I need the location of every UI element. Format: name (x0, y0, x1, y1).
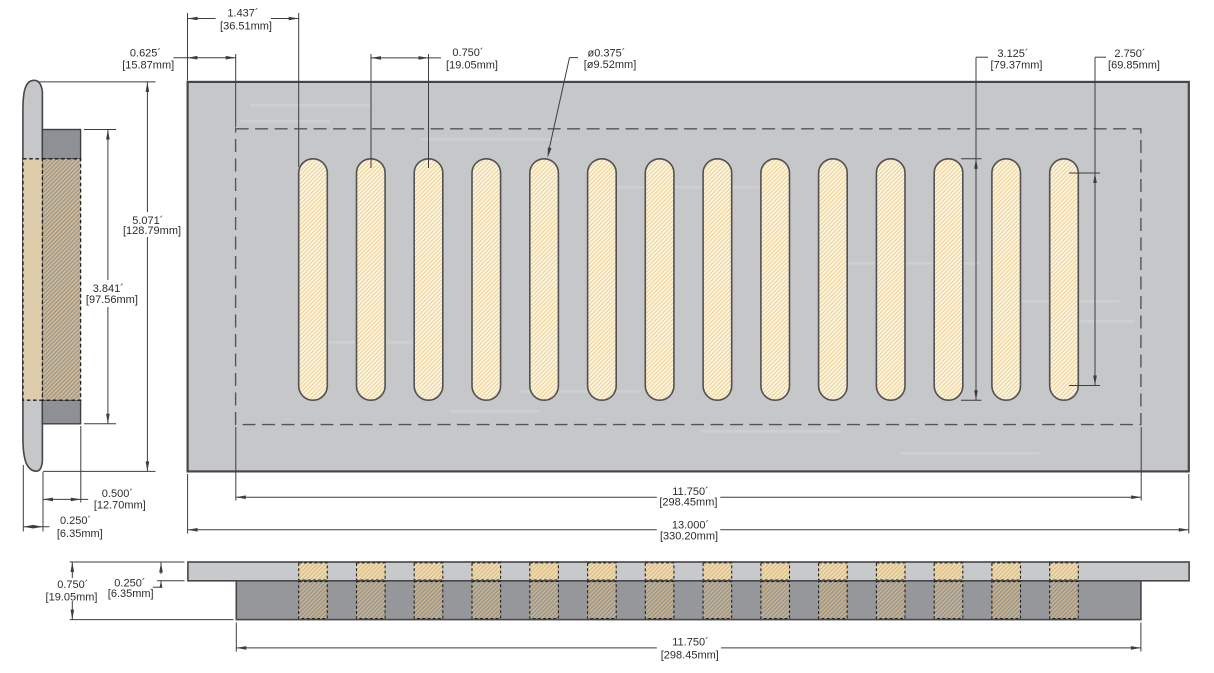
svg-text:1.437´: 1.437´ (227, 8, 258, 20)
svg-text:[298.45mm]: [298.45mm] (661, 649, 719, 661)
svg-text:0.750´: 0.750´ (452, 47, 483, 59)
svg-text:[6.35mm]: [6.35mm] (108, 588, 154, 600)
svg-text:[97.56mm]: [97.56mm] (86, 294, 138, 306)
svg-text:[19.05mm]: [19.05mm] (446, 60, 498, 72)
svg-text:[69.85mm]: [69.85mm] (1108, 59, 1160, 71)
svg-text:ø0.375´: ø0.375´ (588, 47, 626, 59)
svg-text:[128.79mm]: [128.79mm] (123, 225, 181, 237)
svg-text:[298.45mm]: [298.45mm] (659, 497, 717, 509)
svg-text:[12.70mm]: [12.70mm] (94, 500, 146, 512)
svg-text:[19.05mm]: [19.05mm] (46, 591, 98, 603)
svg-text:0.250´: 0.250´ (60, 515, 91, 527)
svg-text:3.125´: 3.125´ (997, 48, 1028, 60)
svg-text:11.750´: 11.750´ (672, 636, 709, 648)
svg-text:2.750´: 2.750´ (1114, 48, 1145, 60)
svg-text:[36.51mm]: [36.51mm] (220, 20, 272, 32)
svg-text:[15.87mm]: [15.87mm] (122, 59, 174, 71)
svg-text:[330.20mm]: [330.20mm] (660, 531, 718, 543)
svg-text:0.500´: 0.500´ (102, 488, 133, 500)
svg-text:0.750´: 0.750´ (57, 579, 88, 591)
svg-text:0.625´: 0.625´ (130, 48, 161, 60)
svg-text:[ø9.52mm]: [ø9.52mm] (584, 59, 637, 71)
svg-text:[6.35mm]: [6.35mm] (57, 528, 103, 540)
svg-text:[79.37mm]: [79.37mm] (991, 59, 1043, 71)
